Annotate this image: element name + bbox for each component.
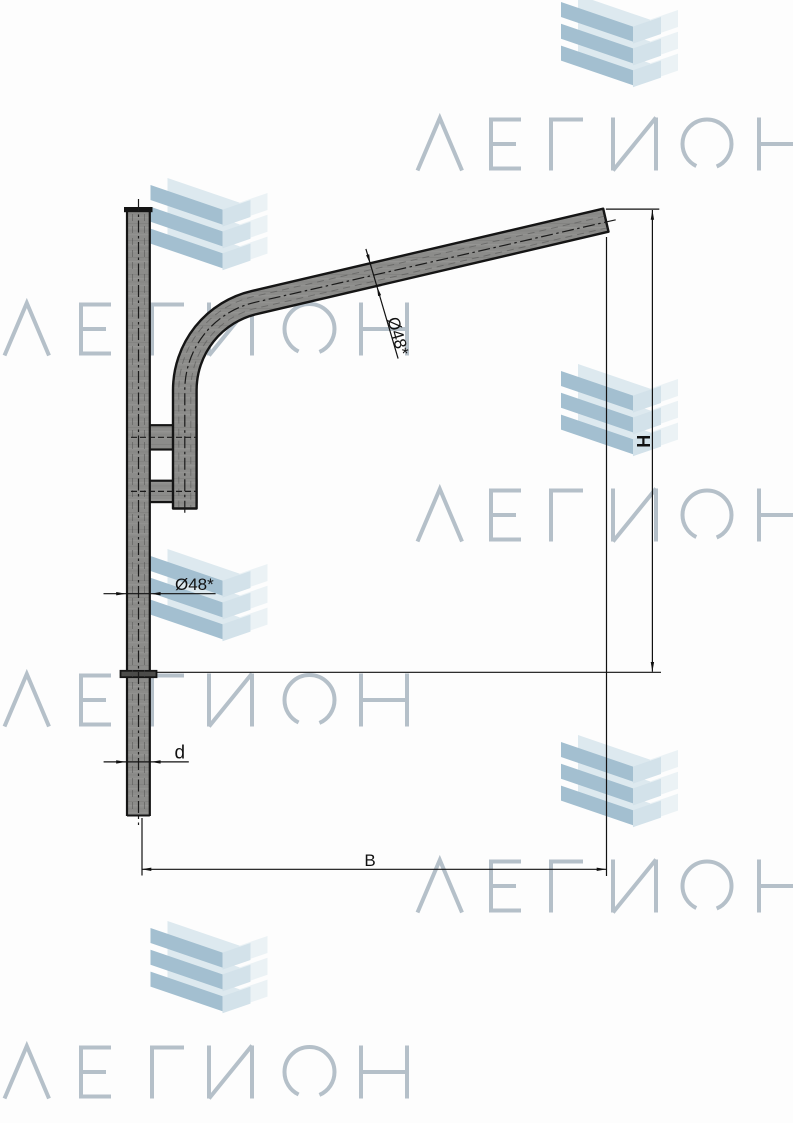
svg-text:B: B [364,851,375,870]
svg-text:H: H [634,435,654,448]
svg-text:Ø48*: Ø48* [175,575,214,594]
svg-text:d: d [175,743,186,764]
